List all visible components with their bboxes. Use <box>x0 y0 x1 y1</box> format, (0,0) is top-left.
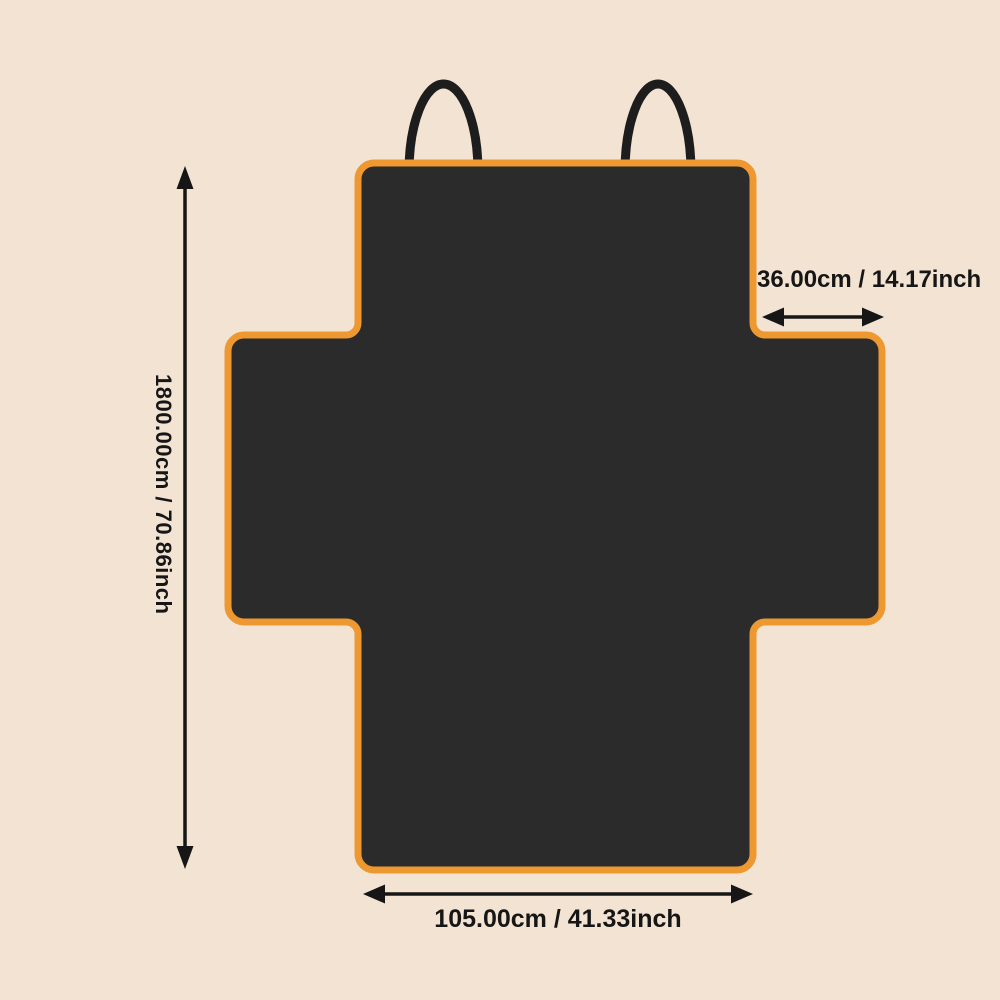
flap-width-dimension-label: 36.00cm / 14.17inch <box>757 266 957 294</box>
height-dimension-label: 1800.00cm / 70.86inch <box>150 374 176 614</box>
dimension-diagram: 1800.00cm / 70.86inch 36.00cm / 14.17inc… <box>0 0 1000 1000</box>
bottom-width-dimension-label: 105.00cm / 41.33inch <box>408 905 708 934</box>
